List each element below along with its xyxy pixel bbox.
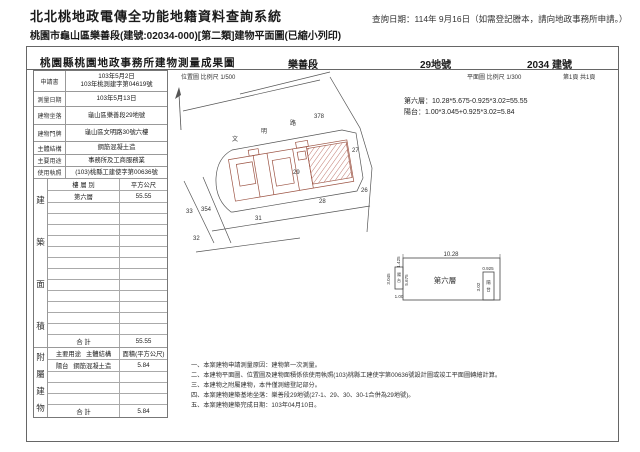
main-use: 事務所及工商服務業 [66,155,167,166]
note-1: 一、本案建物申請測量原因：建物第一次測量。 [191,361,619,371]
building-area-section: 建 築 面 積 樓 層 別 平方公尺 第六層 55.55 [34,179,167,347]
application-number: 103年桃測建字第04619號 [80,81,152,89]
total-area: 55.55 [120,335,167,347]
main-structure: 鋼筋混凝土造 [66,142,167,154]
annex-side-label: 附 屬 建 物 [34,348,48,417]
use-license: (103)桃縣工建使字第00636號 [66,167,167,178]
row-label: 建物坐落 [34,107,66,124]
area-formulas: 第六層：10.28*5.675-0.925*3.02=55.55 陽台：1.00… [404,96,528,118]
table-row: 建物坐落 龜山區樂善段29地號 [34,107,167,125]
formula-floor: 第六層：10.28*5.675-0.925*3.02=55.55 [404,96,528,107]
annex-area-header: 面積(平方公尺) [120,348,167,359]
annex-building-section: 附 屬 建 物 主要用途 主體結構 面積(平方公尺) 陽台 鋼筋混凝土造 [34,347,167,417]
table-row: 使用執照 (103)桃縣工建使字第00636號 [34,167,167,179]
annex-struct-header: 主體結構 [86,349,111,358]
document-subtitle: 桃園市龜山區樂善段(建號:02034-000)[第二類]建物平面圖(已縮小列印) [30,27,341,42]
annex-struct: 鋼筋混凝土造 [73,361,111,370]
building-area-side-label: 建 築 面 積 [34,179,48,347]
total-label: 合 計 [48,335,120,347]
area-data-row: 第六層 55.55 [48,191,167,203]
annex-total: 5.84 [120,405,167,417]
note-4: 四、本案建物建築基地坐落：樂善段29地號(27-1、29、30、30-1合併為2… [191,391,619,401]
row-label: 主體結構 [34,142,66,154]
floor-name: 第六層 [48,191,120,202]
note-5: 五、本案建物建築完成日期：103年04月10日。 [191,401,619,411]
query-date: 查詢日期：114年 9月16日（如需登記謄本，請向地政事務所申請。） [372,13,627,25]
annex-use-header: 主要用途 [56,349,81,358]
sqm-column-header: 平方公尺 [120,179,167,190]
table-row: 測量日期 103年5月13日 [34,92,167,107]
floor-area: 55.55 [120,191,167,202]
area-total-row: 合 計 55.55 [48,335,167,347]
survey-date: 103年5月13日 [66,92,167,106]
table-row: 主體結構 鋼筋混凝土造 [34,142,167,155]
row-label: 建物門牌 [34,125,66,141]
annex-total-row: 合 計 5.84 [48,405,167,417]
page-number: 第1頁 共1頁 [563,72,595,81]
table-row: 主要用途 事務所及工商服務業 [34,155,167,167]
annex-use: 陽台 [56,361,69,370]
row-label: 申請書 [34,71,66,91]
row-label: 使用執照 [34,167,66,178]
formula-balcony: 陽台：1.00*3.045+0.925*3.02=5.84 [404,107,528,118]
row-label: 主要用途 [34,155,66,166]
row-label: 測量日期 [34,92,66,106]
office-title: 桃園縣桃園地政事務所建物測量成果圖 [40,55,236,70]
floor-plan-scale: 平面圖 比例尺 1/300 [467,72,521,81]
annex-data-row: 陽台 鋼筋混凝土造 5.84 [48,360,167,372]
application-date: 103年5月2日 [98,73,134,81]
location-map-scale: 位置圖 比例尺 1/500 [181,72,235,81]
building-site: 龜山區樂善段29地號 [66,107,167,124]
annex-area: 5.84 [120,360,167,371]
notes: 一、本案建物申請測量原因：建物第一次測量。 二、本建物平面圖、位置圖及建物面積係… [191,361,619,411]
note-2: 二、本建物平面圖、位置圖及建物面積係依使用執照(103)桃縣工建使字第00636… [191,371,619,381]
annex-total-label: 合 計 [48,405,120,417]
info-table: 申請書 103年5月2日 103年桃測建字第04619號 測量日期 103年5月… [33,70,168,418]
table-row: 申請書 103年5月2日 103年桃測建字第04619號 [34,71,167,92]
annex-header-row: 主要用途 主體結構 面積(平方公尺) [48,348,167,360]
system-title: 北北桃地政電傳全功能地籍資料查詢系統 [30,6,282,25]
building-address: 龜山區文明路30號六樓 [66,125,167,141]
floor-column-header: 樓 層 別 [48,179,120,190]
area-header-row: 樓 層 別 平方公尺 [48,179,167,191]
screen: 北北桃地政電傳全功能地籍資料查詢系統 查詢日期：114年 9月16日（如需登記謄… [0,0,640,452]
table-row: 建物門牌 龜山區文明路30號六樓 [34,125,167,142]
note-3: 三、本建物之附屬建物，本件僅測繪登記部分。 [191,381,619,391]
